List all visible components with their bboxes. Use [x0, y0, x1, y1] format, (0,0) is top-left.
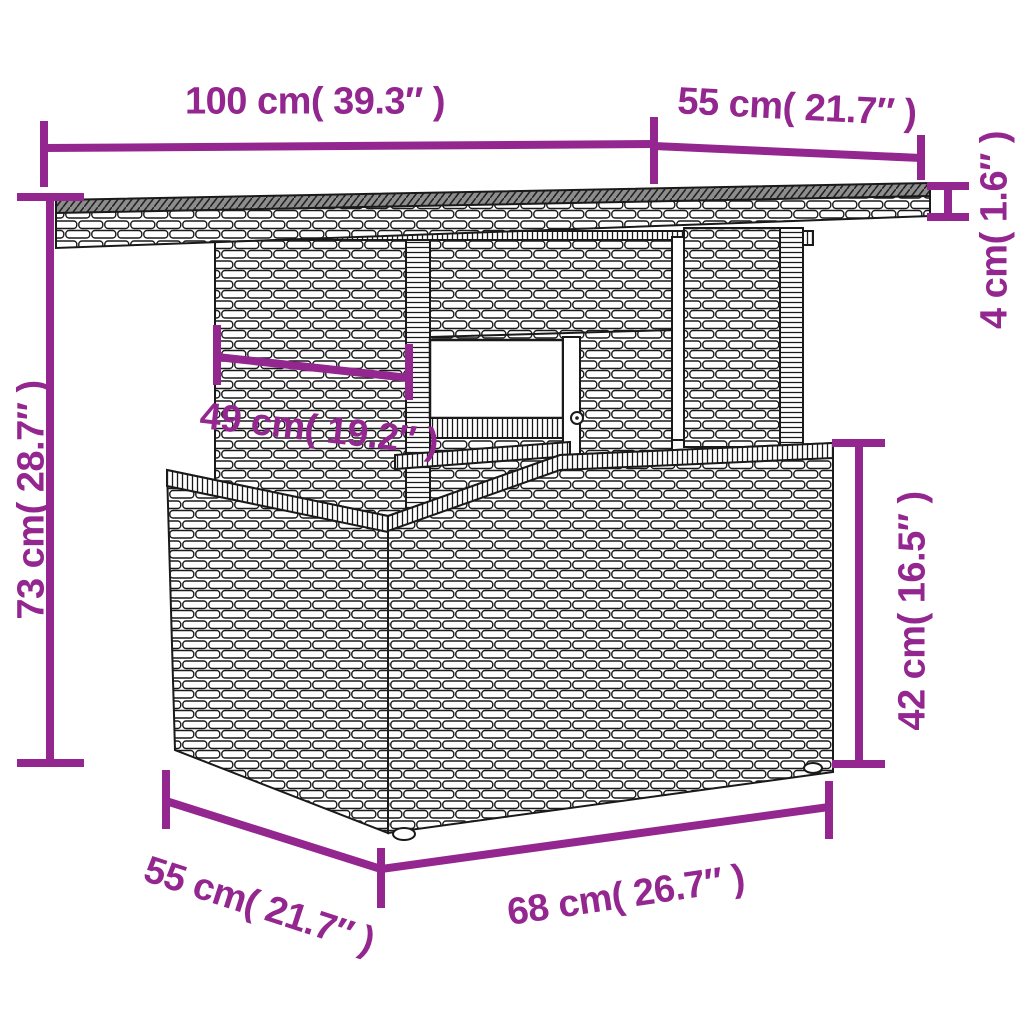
- dim-tabletop-thickness-bracket: [927, 186, 969, 217]
- foot-left: [393, 828, 415, 840]
- leg-gap-post: [672, 237, 684, 440]
- foot-right: [804, 763, 822, 773]
- table-illustration: [56, 183, 930, 840]
- dim-label-tabletop-width: 100 cm( 39.3″ ): [185, 81, 445, 124]
- window-opening: [430, 340, 563, 418]
- dim-tabletop-width-line: [44, 117, 654, 187]
- dim-label-tabletop-thickness: 4 cm( 1.6″ ): [974, 131, 1017, 329]
- dim-tabletop-depth-line: [654, 135, 921, 180]
- right-leg-panel: [684, 228, 780, 447]
- right-leg-roll-edge: [780, 228, 803, 447]
- dim-label-total-height: 73 cm( 28.7″ ): [11, 380, 54, 619]
- window-sill-roll: [430, 418, 565, 438]
- dim-label-base-height: 42 cm( 16.5″ ): [892, 491, 935, 730]
- table-base: [167, 442, 833, 840]
- dim-base-height-line: [832, 443, 885, 764]
- screw-dot: [575, 416, 579, 420]
- diagram-stage: 100 cm( 39.3″ ) 55 cm( 21.7″ ) 4 cm( 1.6…: [0, 0, 1024, 1024]
